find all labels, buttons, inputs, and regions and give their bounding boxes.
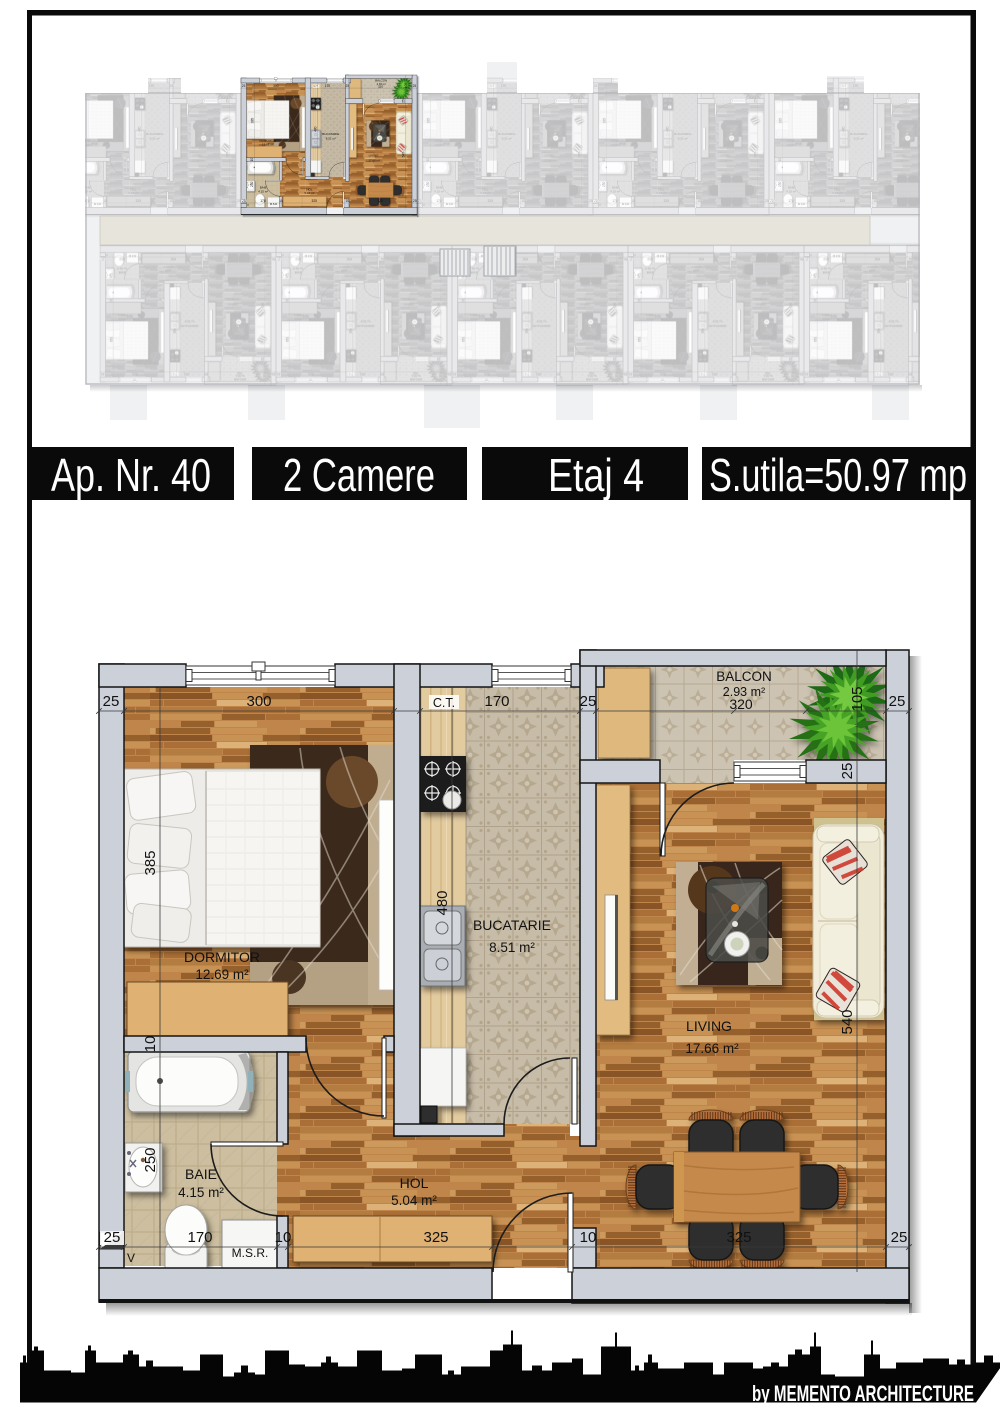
svg-text:Etaj 4: Etaj 4 xyxy=(548,449,644,501)
svg-text:2 Camere: 2 Camere xyxy=(283,449,435,501)
svg-text:by MEMENTO ARCHITECTURE: by MEMENTO ARCHITECTURE xyxy=(752,1381,974,1406)
svg-text:Ap. Nr. 40: Ap. Nr. 40 xyxy=(51,449,211,501)
svg-text:S.utila=50.97 mp: S.utila=50.97 mp xyxy=(709,449,967,501)
